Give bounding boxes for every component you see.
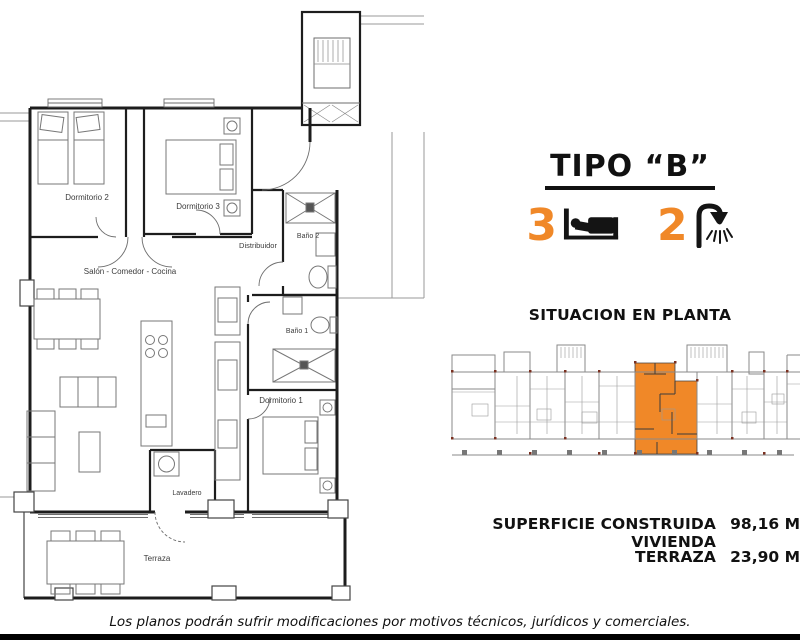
area-row-vivienda: SUPERFICIE CONSTRUIDA VIVIENDA 98,16 M bbox=[430, 515, 800, 551]
bed-icon bbox=[563, 202, 621, 250]
building-outline bbox=[452, 345, 800, 455]
windows bbox=[38, 99, 332, 518]
type-title: TIPO “B” bbox=[545, 149, 715, 190]
situation-plan bbox=[432, 334, 800, 492]
area-label-vivienda: SUPERFICIE CONSTRUIDA VIVIENDA bbox=[430, 515, 716, 551]
room-label-dormitorio1: Dormitorio 1 bbox=[259, 396, 303, 405]
room-label-lavadero: Lavadero bbox=[172, 490, 201, 497]
area-value-terraza: 23,90 M bbox=[716, 548, 800, 566]
area-label-terraza: TERRAZA bbox=[430, 548, 716, 566]
features-row: 3 2 bbox=[445, 200, 800, 252]
area-value-vivienda: 98,16 M bbox=[716, 515, 800, 533]
shower-icon bbox=[694, 200, 734, 252]
terrace-columns bbox=[462, 450, 782, 455]
room-label-bano2: Baño 2 bbox=[297, 233, 319, 240]
wall-junction-marks bbox=[451, 361, 789, 455]
furniture bbox=[27, 112, 337, 594]
room-label-dormitorio2: Dormitorio 2 bbox=[65, 193, 109, 202]
walls bbox=[24, 108, 350, 598]
area-row-terraza: TERRAZA 23,90 M bbox=[430, 548, 800, 566]
disclaimer-text: Los planos podrán sufrir modificaciones … bbox=[0, 614, 800, 630]
situation-title: SITUACION EN PLANTA bbox=[445, 306, 800, 324]
room-label-distribuidor: Distribuidor bbox=[239, 241, 277, 250]
room-label-terraza: Terraza bbox=[144, 554, 171, 563]
plan-sheet: Dormitorio 2 Dormitorio 3 Baño 2 Distrib… bbox=[0, 0, 800, 640]
bottom-bar bbox=[0, 634, 800, 640]
title-block: TIPO “B” bbox=[445, 149, 800, 190]
room-label-salon: Salón - Comedor - Cocina bbox=[84, 267, 177, 276]
highlighted-unit bbox=[635, 363, 697, 454]
bedrooms-count: 3 bbox=[526, 203, 557, 249]
room-label-dormitorio3: Dormitorio 3 bbox=[176, 202, 220, 211]
bathrooms-count: 2 bbox=[657, 203, 688, 249]
room-label-bano1: Baño 1 bbox=[286, 328, 308, 335]
floor-plan: Dormitorio 2 Dormitorio 3 Baño 2 Distrib… bbox=[0, 0, 440, 615]
